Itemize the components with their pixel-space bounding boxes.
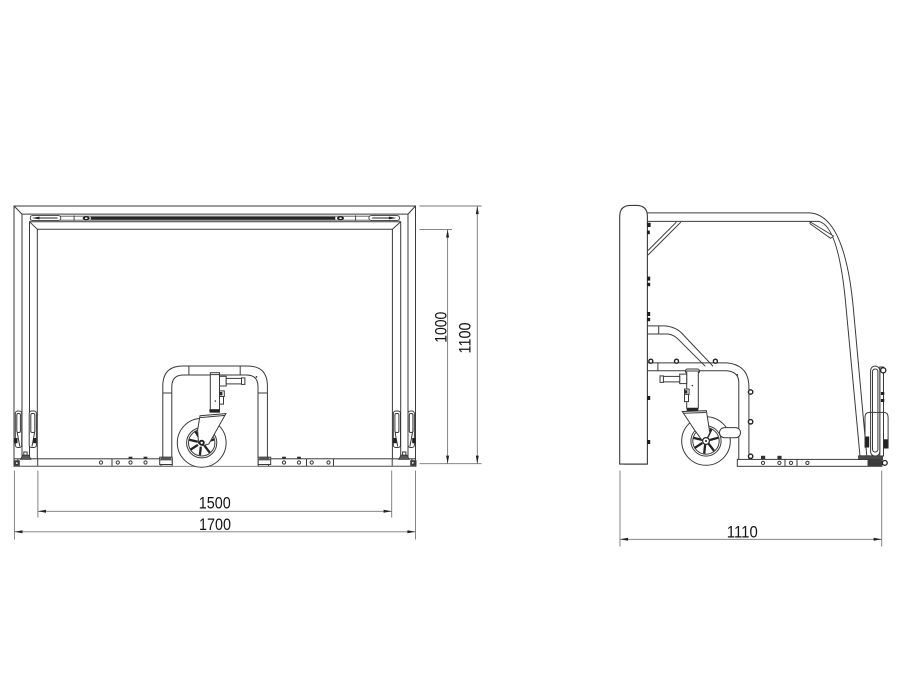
svg-text:1500: 1500 [199, 495, 231, 513]
svg-text:1000: 1000 [432, 312, 450, 343]
svg-text:1100: 1100 [456, 323, 474, 354]
svg-text:1110: 1110 [727, 523, 758, 541]
svg-text:1700: 1700 [199, 516, 231, 534]
